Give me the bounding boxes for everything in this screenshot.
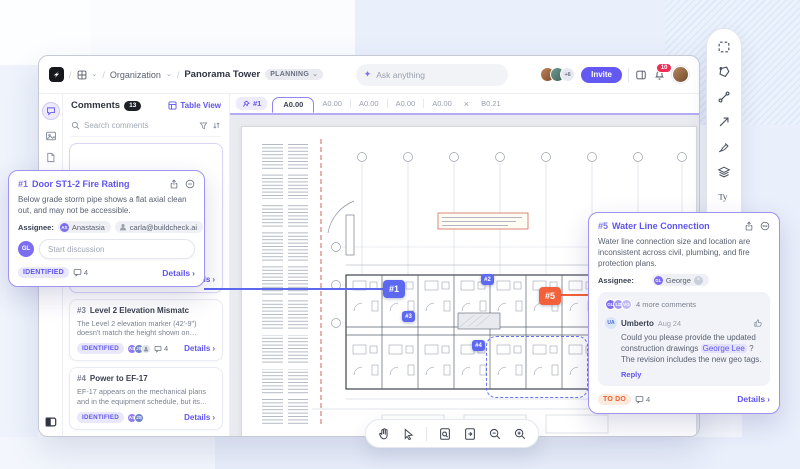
plan-marker-3[interactable]: #3 bbox=[402, 311, 415, 322]
comment-title: Power to EF-17 bbox=[90, 374, 148, 383]
like-icon[interactable] bbox=[753, 318, 763, 328]
measure-tool-icon[interactable] bbox=[717, 90, 731, 104]
plan-marker-2[interactable]: #2 bbox=[481, 274, 494, 285]
tab[interactable]: B0.21 bbox=[473, 97, 509, 110]
connector-line-blue bbox=[204, 288, 384, 290]
table-view-label: Table View bbox=[180, 101, 221, 110]
comment-icon bbox=[73, 268, 82, 277]
chevron-down-icon[interactable]: ⌄ bbox=[92, 71, 98, 78]
filter-icon[interactable] bbox=[199, 121, 208, 130]
pinned-tab-label: #1 bbox=[253, 99, 261, 108]
breadcrumb-separator: / bbox=[102, 70, 105, 80]
chevron-right-icon: › bbox=[192, 268, 195, 278]
avatar: UA bbox=[605, 317, 617, 329]
zoom-out-icon[interactable] bbox=[488, 427, 502, 441]
sparkle-icon: ✦ bbox=[364, 69, 372, 80]
chevron-down-icon: ⌄ bbox=[312, 71, 318, 78]
ask-anything-input[interactable] bbox=[376, 70, 499, 80]
pinned-tab[interactable]: #1 bbox=[236, 97, 267, 110]
details-link[interactable]: Details› bbox=[162, 268, 195, 278]
arrow-tool-icon[interactable] bbox=[717, 115, 731, 129]
sort-icon[interactable] bbox=[212, 121, 221, 130]
svg-text:Ty: Ty bbox=[718, 192, 728, 202]
assignee-name: George bbox=[666, 276, 691, 285]
comment-icon bbox=[154, 345, 162, 353]
comment-title: Level 2 Elevation Mismatc bbox=[90, 306, 189, 315]
collapse-icon[interactable] bbox=[185, 179, 195, 189]
assignee-chip[interactable]: GL George × bbox=[652, 274, 709, 286]
avatar: AS bbox=[60, 223, 69, 232]
comments-search[interactable] bbox=[71, 117, 221, 137]
notification-badge: 10 bbox=[656, 63, 672, 73]
collaborator-avatars[interactable]: +6 bbox=[540, 67, 575, 82]
comment-thread: GL LD VG 4 more comments UA Umberto Aug … bbox=[598, 292, 770, 386]
connector-line-orange bbox=[561, 294, 589, 296]
chevron-right-icon: › bbox=[212, 275, 215, 284]
cursor-tool-icon[interactable] bbox=[402, 427, 415, 440]
pin-icon bbox=[242, 100, 250, 108]
comment-popup-1: #1 Door ST1-2 Fire Rating Below grade st… bbox=[8, 170, 205, 287]
details-link[interactable]: Details› bbox=[184, 344, 215, 353]
breadcrumb: / ⌄ / Organization ⌄ / Panorama Tower PL… bbox=[49, 67, 323, 82]
plan-marker-5[interactable]: #5 bbox=[539, 287, 561, 305]
assignee-name: Anastasia bbox=[72, 223, 105, 232]
layers-icon[interactable] bbox=[717, 165, 731, 179]
comment-body: Below grade storm pipe shows a flat axia… bbox=[18, 194, 195, 216]
status-badge[interactable]: PLANNING ⌄ bbox=[265, 69, 323, 80]
tab[interactable]: A0.00 bbox=[388, 97, 424, 110]
fit-page-icon[interactable] bbox=[463, 427, 477, 441]
breadcrumb-separator: / bbox=[177, 70, 180, 80]
comment-list-item[interactable]: #3Level 2 Elevation Mismatc The Level 2 … bbox=[69, 299, 223, 362]
status-badge: IDENTIFIED bbox=[77, 343, 124, 354]
find-on-sheet-icon[interactable] bbox=[438, 427, 452, 441]
comment-title: Door ST1-2 Fire Rating bbox=[32, 179, 130, 189]
breadcrumb-separator: / bbox=[69, 70, 72, 80]
workspace-grid-icon[interactable] bbox=[77, 70, 87, 80]
pan-hand-tool-icon[interactable] bbox=[377, 427, 391, 441]
close-tab-icon[interactable]: × bbox=[460, 99, 473, 109]
reply-link[interactable]: Reply bbox=[621, 370, 763, 379]
assignee-chip[interactable]: AS Anastasia bbox=[58, 221, 111, 233]
panel-toggle-icon[interactable] bbox=[635, 69, 647, 81]
comment-count: 4 bbox=[154, 344, 168, 353]
polygon-tool-icon[interactable] bbox=[717, 65, 731, 79]
comments-rail-button[interactable] bbox=[42, 102, 60, 120]
comment-title: Water Line Connection bbox=[612, 221, 710, 231]
divider bbox=[628, 68, 629, 82]
assignee-label: Assignee: bbox=[598, 276, 634, 285]
share-icon[interactable] bbox=[744, 221, 754, 231]
details-link[interactable]: Details› bbox=[184, 413, 215, 422]
search-icon bbox=[71, 121, 80, 130]
highlighter-tool-icon[interactable] bbox=[717, 140, 731, 154]
details-link[interactable]: Details› bbox=[737, 394, 770, 404]
assignee-chip[interactable]: carla@buildcheck.ai bbox=[115, 221, 203, 233]
text-tool-icon[interactable]: Ty bbox=[717, 190, 731, 204]
status-badge: IDENTIFIED bbox=[18, 267, 69, 278]
avatar-guest-icon bbox=[141, 344, 151, 354]
avatar: JS bbox=[134, 413, 144, 423]
avatar: GL bbox=[18, 241, 34, 257]
comments-title: Comments bbox=[71, 100, 120, 111]
chevron-down-icon[interactable]: ⌄ bbox=[166, 71, 172, 78]
sheet-tab-bar: #1 A0.00 A0.00 A0.00 A0.00 A0.00 × B0.21 bbox=[230, 94, 699, 115]
user-avatar[interactable] bbox=[672, 66, 689, 83]
comment-id: #5 bbox=[598, 221, 608, 231]
share-icon[interactable] bbox=[169, 179, 179, 189]
comment-id: #1 bbox=[18, 179, 28, 189]
comment-popup-5: #5 Water Line Connection Water line conn… bbox=[588, 212, 780, 414]
breadcrumb-org[interactable]: Organization bbox=[110, 70, 161, 80]
tab-active[interactable]: A0.00 bbox=[272, 97, 314, 113]
remove-assignee-icon[interactable]: × bbox=[694, 276, 703, 285]
viewer-toolbar bbox=[365, 419, 539, 448]
more-comments-row[interactable]: GL LD VG 4 more comments bbox=[605, 299, 763, 310]
comment-body: The Level 2 elevation marker (42'-9") do… bbox=[77, 319, 215, 339]
status-badge: TO DO bbox=[598, 394, 631, 405]
bg-tile bbox=[0, 437, 215, 469]
comment-date: Aug 24 bbox=[658, 319, 681, 328]
comment-body: Water line connection size and location … bbox=[598, 236, 770, 269]
more-comments-label: 4 more comments bbox=[636, 300, 696, 309]
comment-id: #4 bbox=[77, 374, 86, 383]
person-icon bbox=[119, 223, 127, 231]
table-view-button[interactable]: Table View bbox=[168, 101, 221, 110]
notifications-button[interactable]: 10 bbox=[653, 68, 666, 81]
ask-anything-bar[interactable]: ✦ bbox=[356, 64, 508, 86]
comment-body: EF-17 appears on the mechanical plans an… bbox=[77, 387, 215, 407]
tab[interactable]: A0.00 bbox=[351, 97, 387, 110]
app-logo[interactable] bbox=[49, 67, 64, 82]
comment-icon bbox=[635, 395, 644, 404]
comments-search-input[interactable] bbox=[84, 121, 195, 130]
start-discussion-input[interactable] bbox=[48, 245, 186, 254]
images-rail-button[interactable] bbox=[45, 130, 57, 142]
select-area-tool-icon[interactable] bbox=[717, 40, 731, 54]
discussion-input-wrap[interactable] bbox=[39, 239, 195, 259]
avatar: GL bbox=[654, 276, 663, 285]
comments-count-badge: 13 bbox=[124, 101, 141, 111]
comment-count: 4 bbox=[635, 395, 650, 404]
chevron-right-icon: › bbox=[767, 394, 770, 404]
assignee-name: carla@buildcheck.ai bbox=[130, 223, 197, 232]
top-bar: / ⌄ / Organization ⌄ / Panorama Tower PL… bbox=[39, 56, 699, 94]
plan-marker-1[interactable]: #1 bbox=[383, 280, 405, 298]
divider bbox=[426, 427, 427, 441]
comment-author: Umberto bbox=[621, 319, 654, 328]
chevron-right-icon: › bbox=[212, 344, 215, 353]
status-badge: IDENTIFIED bbox=[77, 412, 124, 423]
comment-list-item[interactable]: #4Power to EF-17 EF-17 appears on the me… bbox=[69, 367, 223, 430]
comment-count: 4 bbox=[73, 268, 88, 277]
status-badge-label: PLANNING bbox=[270, 71, 309, 78]
assignee-label: Assignee: bbox=[18, 223, 54, 232]
comment-text: Could you please provide the updated con… bbox=[621, 332, 763, 366]
more-icon[interactable] bbox=[760, 221, 770, 231]
collapse-sidebar-icon[interactable] bbox=[45, 416, 57, 428]
avatar-overflow: +6 bbox=[560, 67, 575, 82]
invite-button[interactable]: Invite bbox=[581, 67, 622, 83]
zoom-in-icon[interactable] bbox=[513, 427, 527, 441]
breadcrumb-project[interactable]: Panorama Tower bbox=[184, 69, 260, 80]
plan-marker-4[interactable]: #4 bbox=[472, 340, 485, 351]
revision-cloud bbox=[486, 336, 588, 398]
avatar: VG bbox=[621, 299, 632, 310]
chevron-right-icon: › bbox=[212, 413, 215, 422]
tab[interactable]: A0.00 bbox=[314, 97, 350, 110]
comment-id: #3 bbox=[77, 306, 86, 315]
document-rail-button[interactable] bbox=[45, 152, 56, 163]
tab[interactable]: A0.00 bbox=[424, 97, 460, 110]
mention-chip[interactable]: George Lee bbox=[701, 344, 747, 353]
